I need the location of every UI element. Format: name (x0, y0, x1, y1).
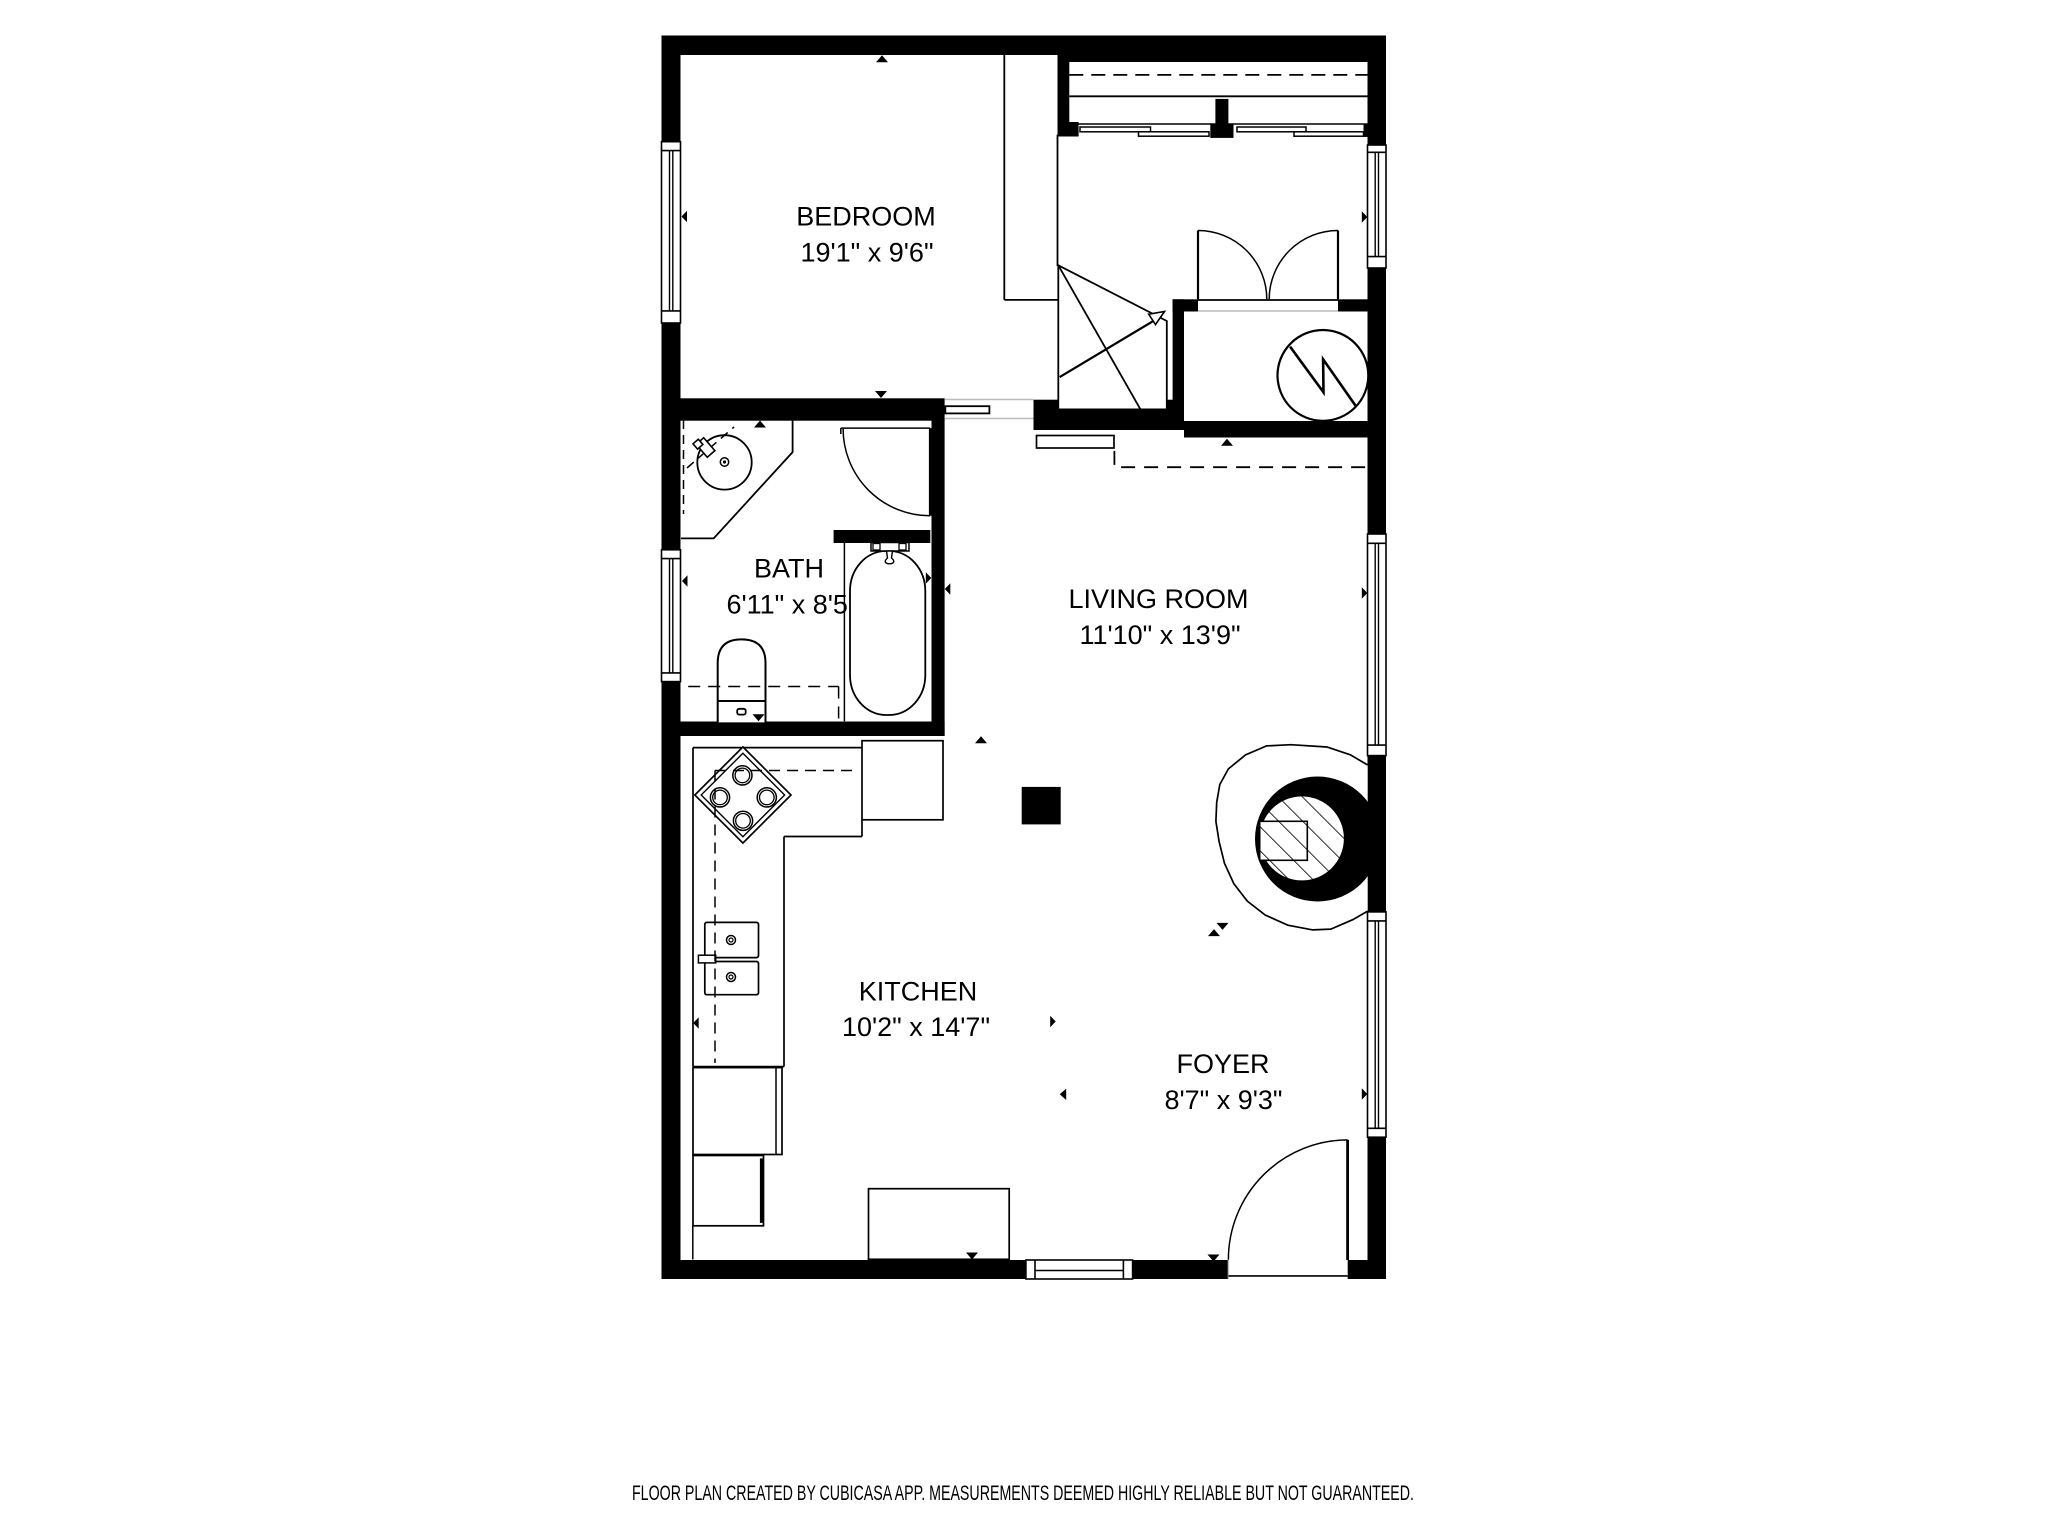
svg-text:10'2" x 14'7": 10'2" x 14'7" (842, 1012, 990, 1042)
svg-text:11'10" x 13'9": 11'10" x 13'9" (1079, 620, 1240, 650)
svg-text:KITCHEN: KITCHEN (859, 976, 978, 1006)
svg-text:8'7" x 9'3": 8'7" x 9'3" (1164, 1085, 1282, 1115)
svg-text:BEDROOM: BEDROOM (796, 201, 936, 231)
svg-text:FOYER: FOYER (1176, 1049, 1269, 1079)
svg-text:6'11" x 8'5": 6'11" x 8'5" (726, 589, 857, 619)
svg-text:BATH: BATH (754, 554, 824, 584)
svg-text:LIVING ROOM: LIVING ROOM (1068, 584, 1248, 614)
svg-text:FLOOR PLAN CREATED BY CUBICASA: FLOOR PLAN CREATED BY CUBICASA APP. MEAS… (632, 1482, 1414, 1505)
svg-text:19'1" x 9'6": 19'1" x 9'6" (800, 238, 933, 268)
